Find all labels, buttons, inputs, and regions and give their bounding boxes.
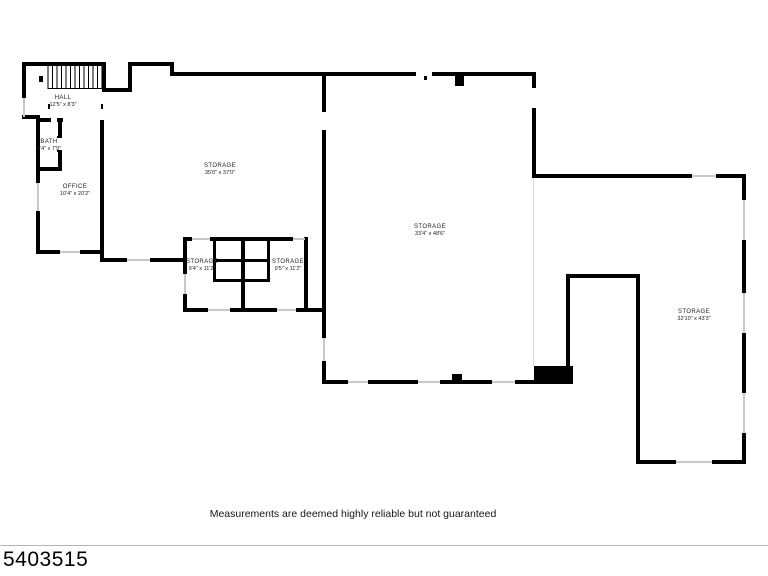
room-name: STORAGE	[204, 162, 236, 170]
room-label-office: OFFICE 10'4" x 20'2"	[60, 183, 90, 199]
footer-divider	[0, 545, 768, 546]
room-dims: 7'4" x 7'9"	[37, 146, 61, 153]
room-dims: 9'5" x 11'2"	[272, 266, 304, 273]
room-dims: 10'4" x 20'2"	[60, 191, 90, 198]
stair-treads	[48, 66, 104, 89]
room-label-storage-east: STORAGE 32'10" x 43'3"	[677, 308, 710, 324]
room-name: STORAGE	[186, 258, 218, 266]
room-name: STORAGE	[272, 258, 304, 266]
floorplan-image: HALL 12'5" x 8'3" BATH 7'4" x 7'9" OFFIC…	[0, 0, 768, 576]
room-dims: 32'10" x 43'3"	[677, 316, 710, 323]
room-name: OFFICE	[60, 183, 90, 191]
room-name: BATH	[37, 138, 61, 146]
listing-id: 5403515	[3, 548, 88, 572]
room-division-line	[533, 178, 534, 366]
room-dims: 12'5" x 8'3"	[49, 102, 76, 109]
room-label-storage-small-left: STORAGE 9'4" x 11'2"	[186, 258, 218, 274]
room-name: STORAGE	[414, 223, 446, 231]
walls	[22, 62, 746, 464]
room-label-storage-west: STORAGE 35'0" x 37'0"	[204, 162, 236, 178]
room-name: HALL	[49, 94, 76, 102]
room-label-hall: HALL 12'5" x 8'3"	[49, 94, 76, 110]
disclaimer-text: Measurements are deemed highly reliable …	[210, 508, 497, 520]
room-name: STORAGE	[677, 308, 710, 316]
room-label-bath: BATH 7'4" x 7'9"	[37, 138, 61, 154]
room-dims: 35'0" x 37'0"	[204, 170, 236, 177]
room-label-storage-center: STORAGE 33'4" x 48'6"	[414, 223, 446, 239]
room-dims: 33'4" x 48'6"	[414, 231, 446, 238]
floorplan-drawing	[0, 0, 768, 576]
room-label-storage-small-right: STORAGE 9'5" x 11'2"	[272, 258, 304, 274]
room-dims: 9'4" x 11'2"	[186, 266, 218, 273]
